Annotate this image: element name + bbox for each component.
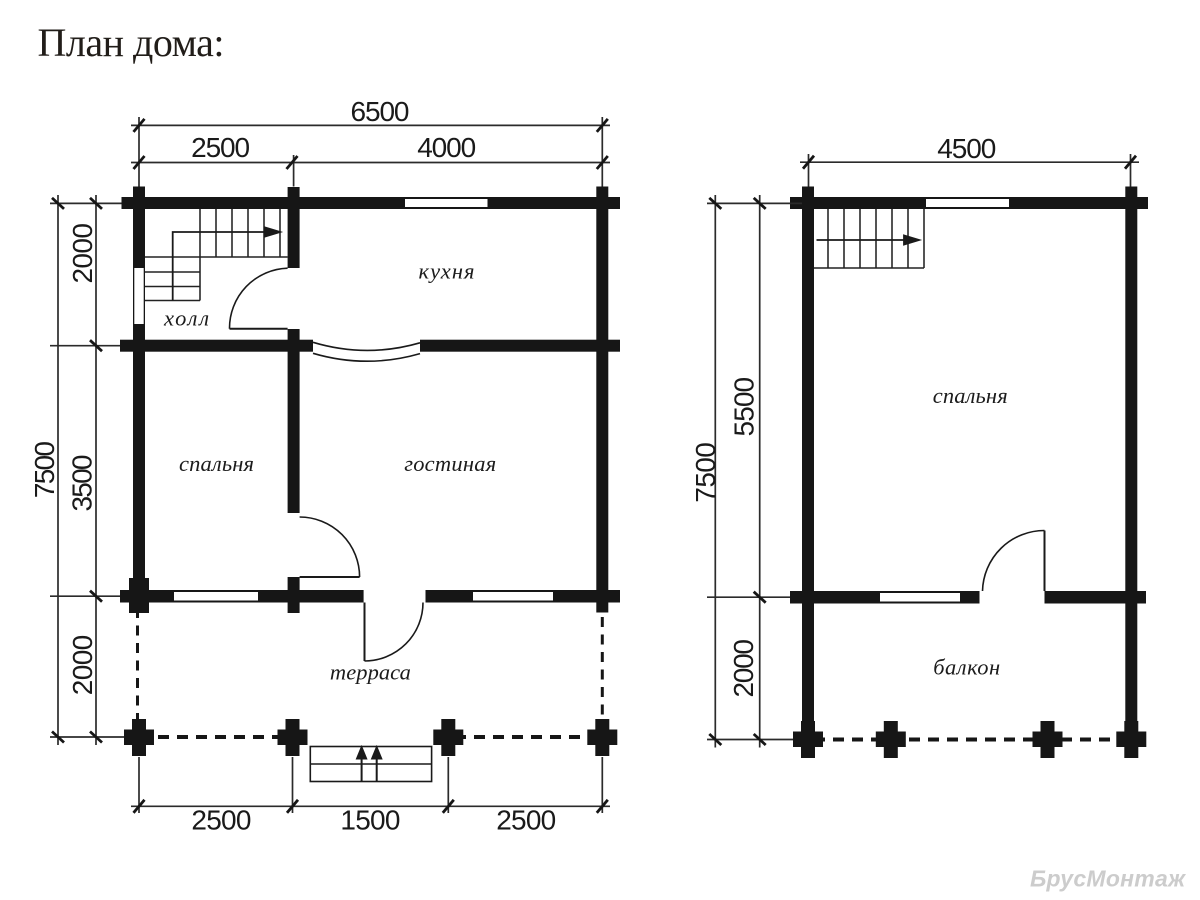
svg-text:гостиная: гостиная [404, 451, 496, 476]
svg-text:План дома:: План дома: [38, 20, 225, 65]
svg-text:4500: 4500 [937, 133, 996, 164]
svg-text:5500: 5500 [729, 377, 760, 437]
svg-text:7500: 7500 [690, 442, 721, 503]
svg-text:6500: 6500 [351, 96, 410, 127]
svg-text:спальня: спальня [933, 383, 1008, 408]
svg-text:4000: 4000 [417, 132, 476, 163]
svg-text:3500: 3500 [67, 455, 98, 512]
svg-text:7500: 7500 [29, 441, 60, 498]
svg-text:2500: 2500 [191, 132, 250, 163]
svg-text:1500: 1500 [340, 805, 400, 836]
svg-text:балкон: балкон [933, 655, 1000, 680]
svg-text:2000: 2000 [67, 223, 98, 283]
svg-text:терраса: терраса [330, 660, 411, 685]
svg-text:кухня: кухня [419, 259, 475, 284]
svg-text:2500: 2500 [496, 805, 556, 836]
svg-text:спальня: спальня [179, 451, 254, 476]
svg-text:2500: 2500 [191, 805, 251, 836]
svg-text:2000: 2000 [728, 639, 759, 698]
svg-text:2000: 2000 [67, 635, 98, 696]
svg-text:БрусМонтаж: БрусМонтаж [1030, 866, 1186, 892]
